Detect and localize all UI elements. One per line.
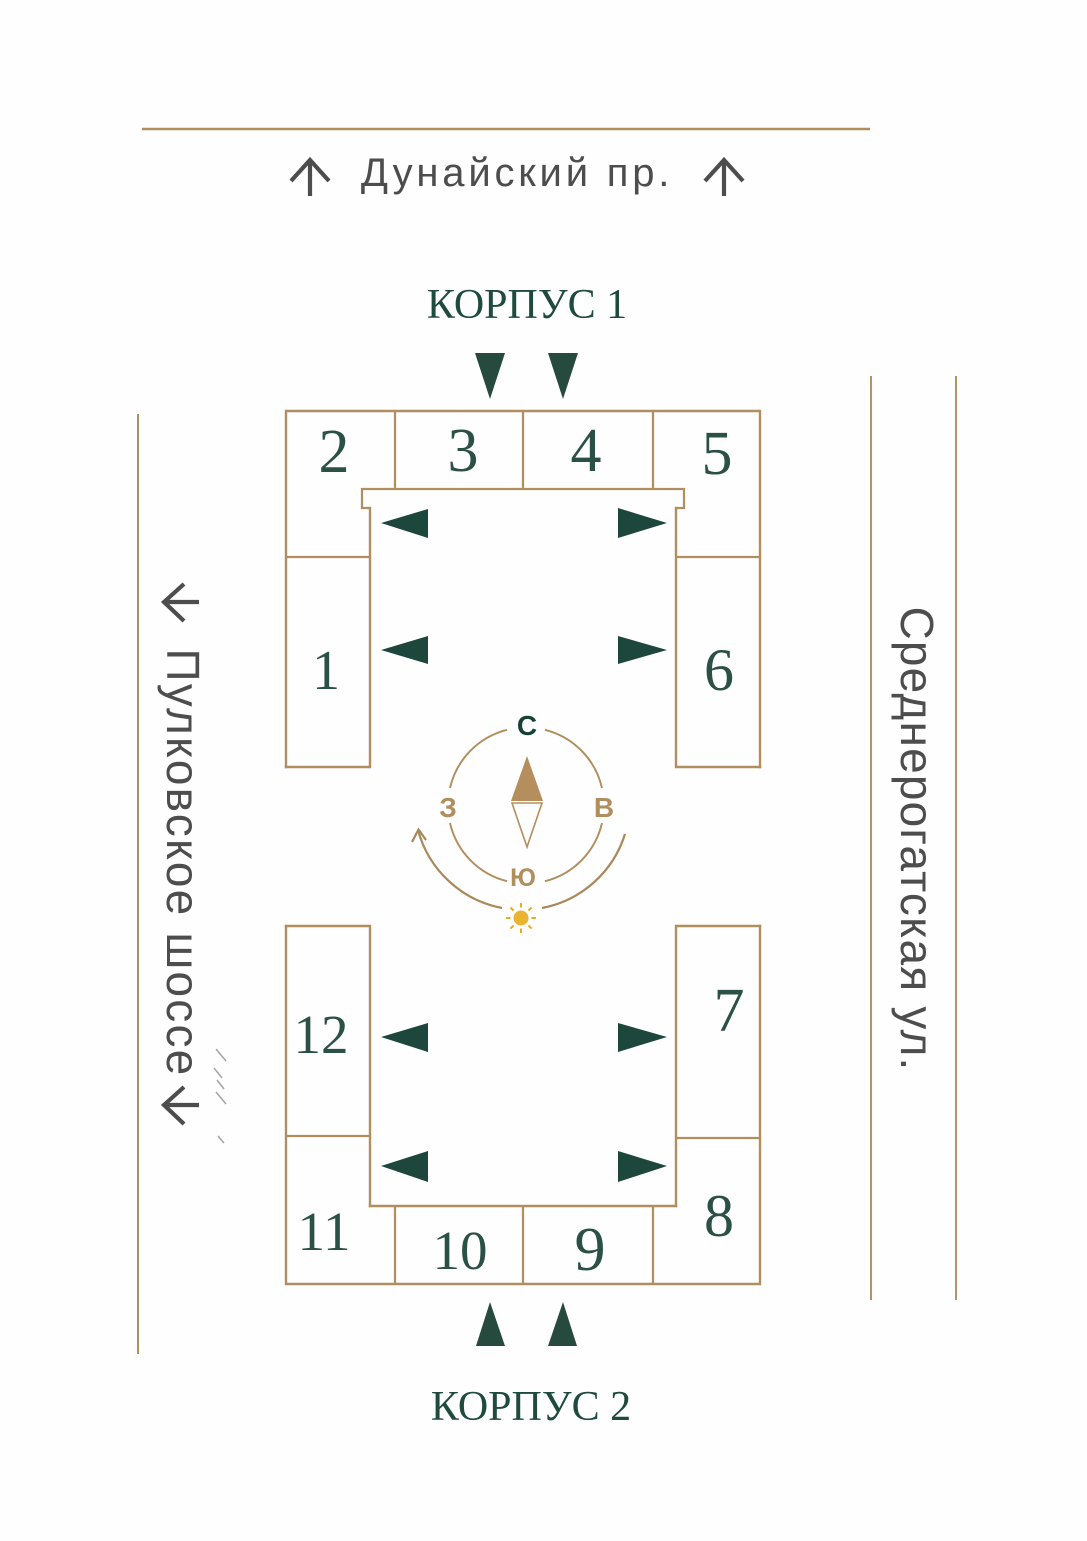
svg-text:6: 6 [704, 637, 734, 703]
svg-text:КОРПУС 2: КОРПУС 2 [431, 1384, 631, 1430]
svg-text:Дунайский пр.: Дунайский пр. [361, 151, 673, 195]
svg-text:КОРПУС 1: КОРПУС 1 [427, 282, 627, 328]
svg-text:11: 11 [298, 1201, 351, 1262]
svg-text:10: 10 [433, 1220, 488, 1281]
svg-text:12: 12 [294, 1004, 349, 1065]
svg-text:3: 3 [448, 417, 479, 485]
svg-text:Ю: Ю [510, 864, 536, 892]
svg-text:1: 1 [312, 640, 340, 702]
svg-text:2: 2 [319, 418, 350, 486]
svg-text:З: З [439, 792, 457, 823]
svg-text:8: 8 [704, 1183, 734, 1249]
svg-text:В: В [594, 792, 614, 823]
svg-text:С: С [517, 710, 537, 741]
svg-text:7: 7 [714, 977, 745, 1045]
svg-text:Среднерогатская ул.: Среднерогатская ул. [891, 606, 943, 1071]
svg-text:9: 9 [575, 1216, 606, 1284]
svg-text:Пулковское шоссе: Пулковское шоссе [157, 649, 209, 1078]
svg-text:4: 4 [571, 417, 602, 485]
svg-text:5: 5 [702, 420, 733, 488]
